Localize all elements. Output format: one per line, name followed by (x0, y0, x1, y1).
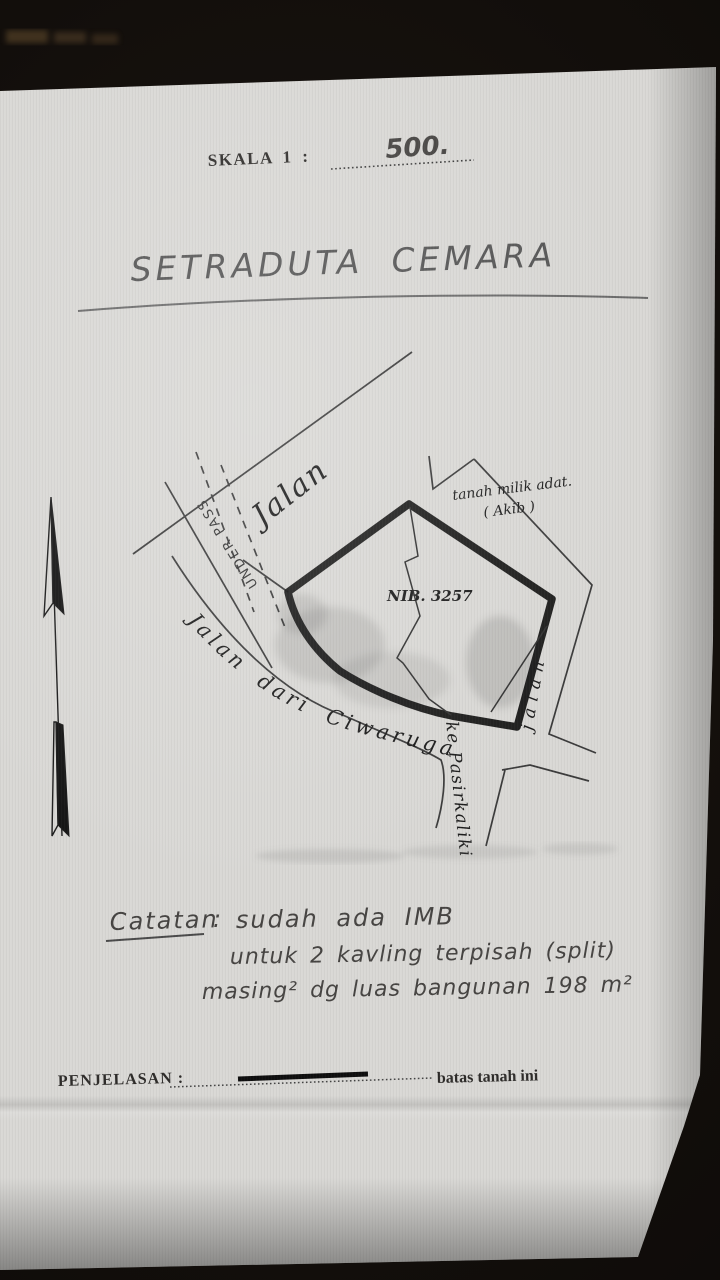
legend-block: PENJELASAN : batas tanah ini (58, 1067, 539, 1090)
road-line-bottom-right (502, 765, 589, 781)
site-plan-drawing: SKALA 1 : 500. SETRADUTA CEMARA (0, 0, 720, 1280)
bleed-through-smudge (255, 843, 618, 863)
scale-block: SKALA 1 : 500. (207, 131, 474, 170)
legend-boundary-symbol (238, 1074, 368, 1079)
notes-line-3: masing² dg luas bangunan 198 m² (202, 972, 633, 1005)
notes-colon: : (213, 905, 221, 933)
road-line-south-edge (486, 770, 505, 846)
title-block: SETRADUTA CEMARA (78, 235, 648, 311)
legend-text: batas tanah ini (437, 1067, 539, 1087)
legend-label: PENJELASAN : (58, 1070, 185, 1090)
notes-block: Catatan : sudah ada IMB untuk 2 kavling … (106, 902, 633, 1005)
scale-label: SKALA 1 : (207, 147, 310, 170)
corner-glare (6, 30, 118, 44)
notes-line-1: sudah ada IMB (236, 902, 455, 934)
legend-dotted-line (170, 1078, 432, 1087)
photographed-site-plan: SKALA 1 : 500. SETRADUTA CEMARA (0, 0, 720, 1280)
scale-value: 500. (384, 131, 450, 165)
parcel-number-label: NIB. 3257 (386, 587, 473, 605)
title-underline (78, 296, 648, 311)
page-title: SETRADUTA CEMARA (130, 235, 557, 289)
north-arrow (44, 497, 69, 836)
adjacent-land-boundary (429, 456, 474, 489)
road-label-pasirkaliki: ke Pasirkaliki (441, 720, 475, 858)
notes-heading: Catatan (109, 905, 219, 936)
notes-line-2: untuk 2 kavling terpisah (split) (230, 938, 617, 970)
adjacent-land-label: tanah milik adat. ( Akib ) (452, 473, 573, 521)
road-lines (133, 352, 596, 846)
parcel (275, 504, 552, 727)
